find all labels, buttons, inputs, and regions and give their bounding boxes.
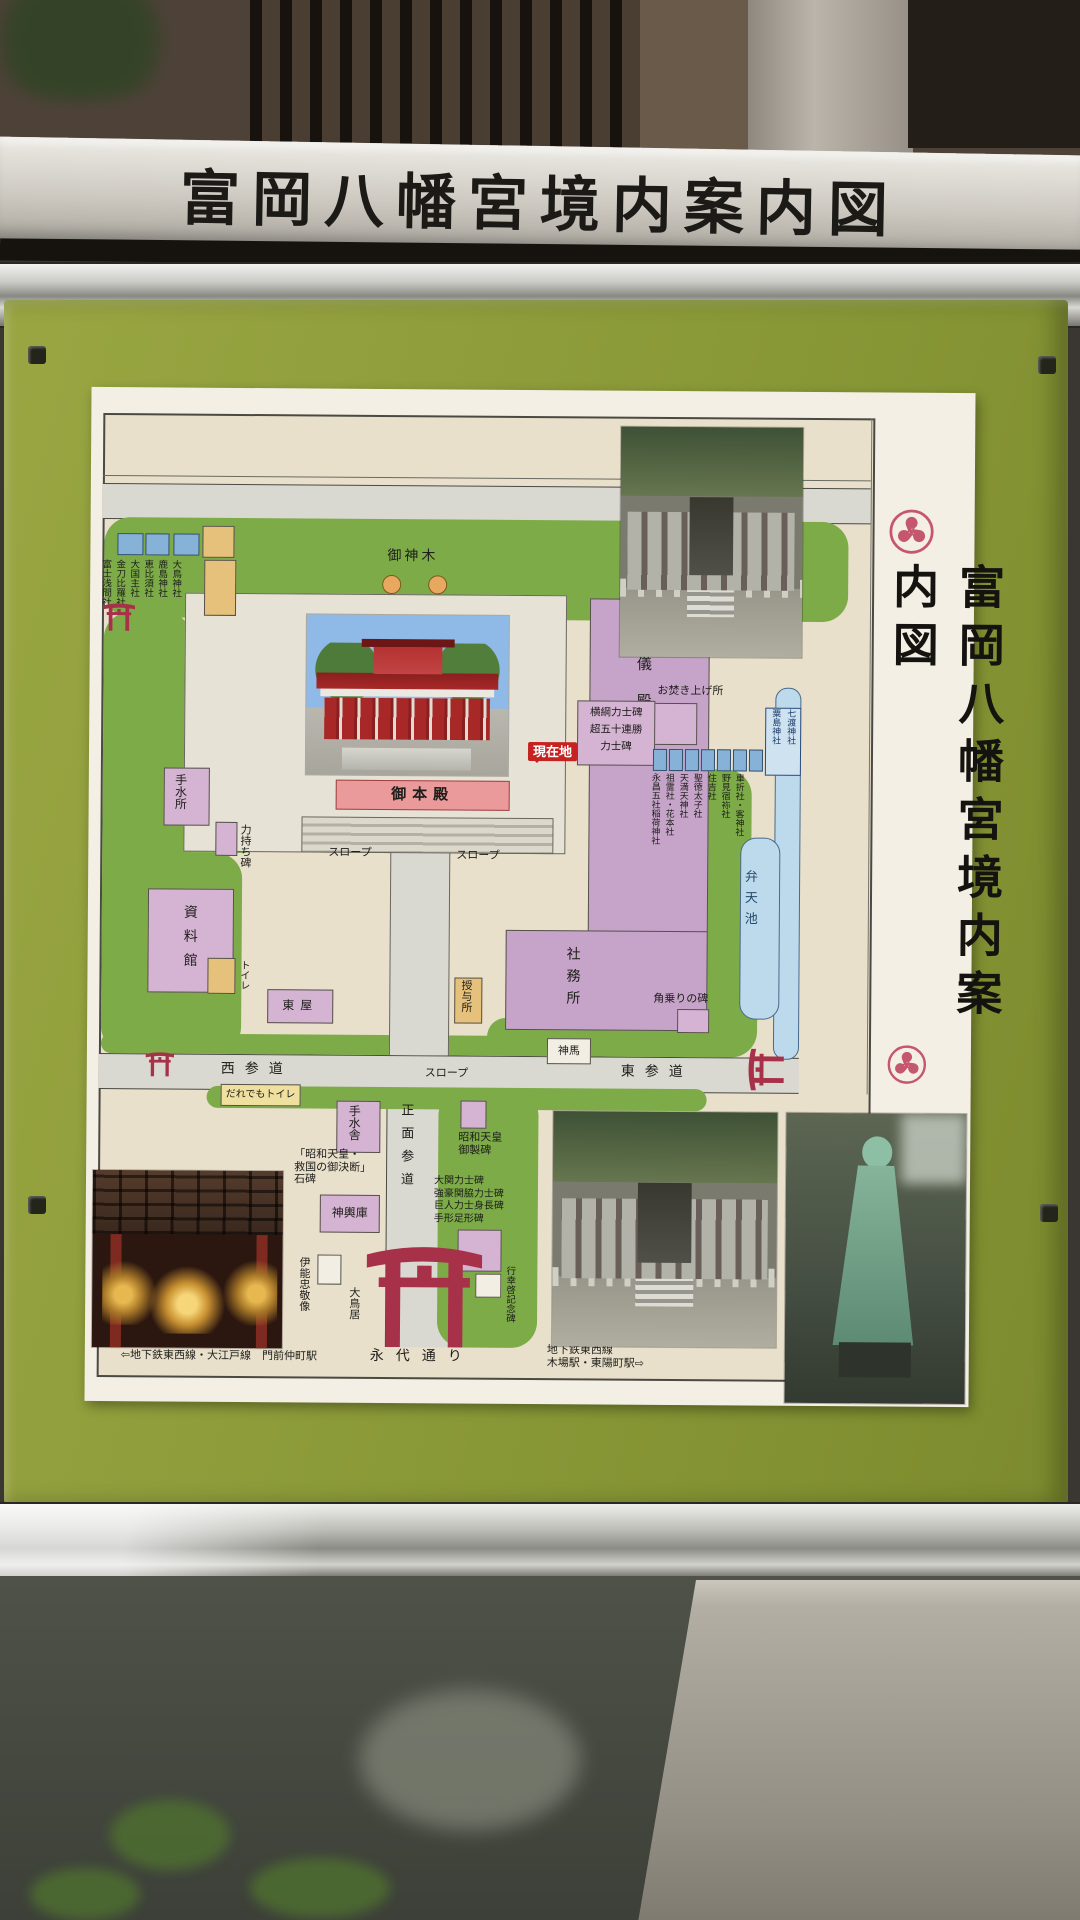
shrine-label: 鹿島神社 [154,559,168,607]
west-approach-label: 西参道 [221,1060,293,1077]
shrine-label: 聖徳太子社 [690,773,705,845]
main-approach-label: 正面参道 [398,1103,414,1195]
yokozuna-line: 横綱力士碑 [578,704,654,722]
sacred-tree-icon [382,575,401,594]
sacred-tree-label: 御神木 [387,547,438,563]
shrine-box [701,749,715,771]
kakunori-label: 角乗りの碑 [653,993,708,1006]
small-shrine-boxes [653,749,763,772]
shrine-box [717,749,731,771]
map-poster: 弁天池 七渡神社 粟島神社 御本殿 手水所 力持ち碑 資料館 トイレ 東屋 授与… [84,387,975,1407]
shrine-box [653,749,667,771]
bolt [28,1196,46,1214]
shinme-box: 神馬 [547,1038,591,1064]
ino-statue-label: 伊能忠敬像 [297,1256,310,1311]
toilet-label: トイレ [237,960,249,990]
sign-title: 富岡八幡宮境内案内図 [179,149,900,249]
yokozuna-monument-box: 横綱力士碑 超五十連勝 力士碑 [577,700,655,766]
pavement-patch [360,1690,580,1830]
main-hall-bar: 御本殿 [336,780,510,811]
small-shrine-labels: 車折社・客神社 野見宿袮社 住吉社 聖徳太子社 天満天神社 祖霊社・花本社 永昌… [648,773,747,846]
fallen-leaves [250,1858,390,1918]
shrine-label: 祖霊社・花本社 [662,773,677,845]
otakiage-label: お焚き上げ所 [657,685,723,698]
shrine-label: 天満天神社 [676,773,691,845]
chozusha-label: 手水舎 [346,1105,360,1141]
photo-ino-statue [784,1113,966,1404]
juyosho-label: 授与所 [459,980,472,1013]
statue-body [824,1165,926,1345]
shrine-label: 永昌五社稲荷神社 [648,773,663,845]
statue-head [862,1137,893,1169]
toilet-building [207,958,235,994]
photo-sky [901,1114,966,1184]
shrine-box [749,750,763,772]
torii-icon [145,1037,175,1089]
accessible-toilet-label: だれでもトイレ [226,1089,296,1101]
station-line: 木場駅・東陽町駅⇨ [547,1357,644,1370]
showa-sekihi-label: 「昭和天皇・ 救国の御決断」 石碑 [294,1148,390,1187]
current-location-badge: 現在地 [528,742,577,761]
accessible-toilet-box: だれでもトイレ [221,1084,301,1107]
shrine-box [685,749,699,771]
shrine-box [733,749,747,771]
fallen-leaves [110,1800,230,1870]
east-approach-label: 東参道 [621,1063,693,1080]
nw-building [204,560,236,616]
torii-icon [102,593,136,639]
nanawatari-awashima-box: 七渡神社 粟島神社 [765,708,801,776]
mikoshi-storage-label: 神輿庫 [332,1207,368,1221]
walkway [389,851,450,1055]
ino-statue-box [317,1255,341,1285]
mitsudomoe-crest-icon [888,508,934,554]
signboard-photo: 富岡八幡宮境内案内図 弁天池 [0,0,1080,1920]
bolt [1038,356,1056,374]
photo-yokozuna-monument [620,427,804,658]
station-right-label: 地下鉄東西線 木場駅・東陽町駅⇨ [547,1344,644,1370]
side-title: 富岡八幡宮境内案内図 [877,562,1012,1043]
slope-label: スロープ [456,849,499,862]
window-grille [250,0,670,158]
slope-label: スロープ [425,1067,468,1080]
azumaya-label: 東屋 [282,999,318,1013]
shrine-office-label: 社務所 [565,946,582,1012]
shinme-label: 神馬 [558,1045,580,1058]
metal-rail-bottom [0,1502,1080,1580]
shrine-box [145,533,169,555]
building-pillar [748,0,913,158]
sacred-tree-icon [428,575,447,594]
kakunori-stone [677,1009,709,1033]
azumaya-building: 東屋 [267,989,333,1023]
shrine-box [669,749,683,771]
photo-main-hall [306,614,509,775]
bolt [1040,1204,1058,1222]
shrine-box [173,534,199,556]
dark-window [908,0,1080,148]
main-hall-label: 御本殿 [391,786,454,804]
shrine-label: 七渡神社 [783,709,798,775]
chikaramochi-stone [215,822,237,856]
shrine-label: 粟島神社 [768,709,783,775]
shrine-label: 住吉社 [704,773,719,845]
torii-icon [733,1047,797,1091]
gyosei-line: 御製碑 [458,1144,502,1157]
station-left-label: ⇦地下鉄東西線・大江戸線 門前仲町駅 [121,1349,317,1363]
shrine-label: 大鳥神社 [168,559,182,607]
shrine-label: 恵比須社 [140,559,154,607]
rikishi-monuments-label: 大関力士碑 強豪関脇力士碑 巨人力士身長碑 手形足形碑 [434,1175,504,1225]
grand-torii-icon [358,1239,491,1348]
shrine-label: 野見宿袮社 [718,773,733,845]
gyokokei-label: 行幸啓記念碑 [503,1266,514,1323]
monument-line: 大関力士碑 [434,1175,504,1188]
sekihi-line: 石碑 [294,1174,390,1187]
yokozuna-line: 力士碑 [578,738,654,756]
slope-label: スロープ [328,847,371,860]
pond-label: 弁天池 [742,869,757,932]
bolt [28,346,46,364]
eitai-street-label: 永代通り [370,1347,474,1364]
photo-mikoshi [92,1170,283,1348]
gyosei-stone [460,1101,486,1129]
shrine-box [117,533,143,555]
gyosei-label: 昭和天皇 御製碑 [458,1132,502,1158]
shrine-label: 車折社・客神社 [732,773,747,845]
sekihi-line: 救国の御決断」 [294,1161,390,1174]
building-beam [640,0,755,158]
monument-line: 強豪関脇力士碑 [434,1188,504,1201]
nw-building [202,526,234,558]
museum-label: 資料館 [182,905,199,977]
monument-line: 手形足形碑 [434,1213,504,1226]
gyosei-line: 昭和天皇 [458,1132,502,1145]
sekihi-line: 「昭和天皇・ [294,1148,390,1161]
mikoshi-storage-building: 神輿庫 [320,1195,380,1233]
statue-base [839,1342,911,1377]
temizusho-label: 手水所 [173,774,187,810]
mitsudomoe-crest-icon [887,1044,927,1084]
otakiage-box [651,703,697,745]
fallen-leaves [30,1868,140,1920]
monument-line: 巨人力士身長碑 [434,1200,504,1213]
chikaramochi-label: 力持ち碑 [238,824,251,868]
yokozuna-line: 超五十連勝 [578,721,654,739]
photo-ozeki-monument [552,1111,778,1348]
